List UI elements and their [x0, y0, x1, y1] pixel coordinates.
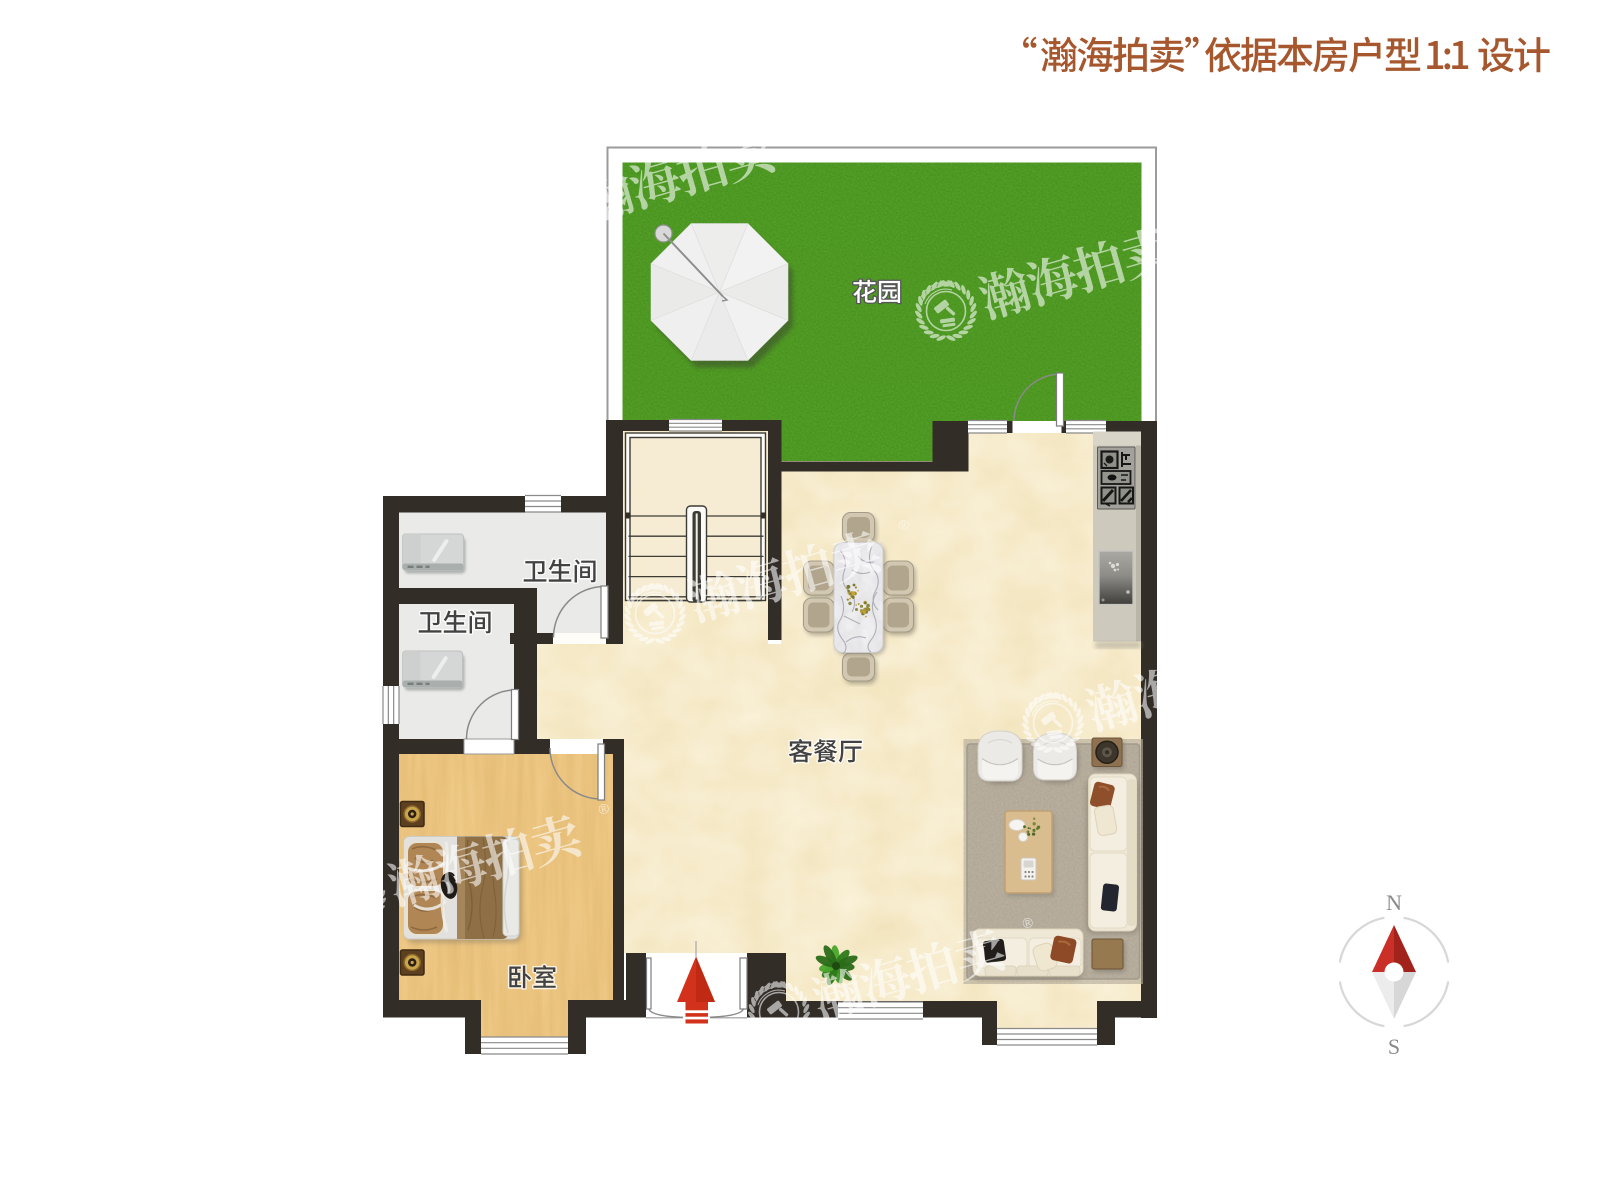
svg-text:S: S: [1388, 1034, 1400, 1059]
svg-text:N: N: [1386, 890, 1402, 915]
